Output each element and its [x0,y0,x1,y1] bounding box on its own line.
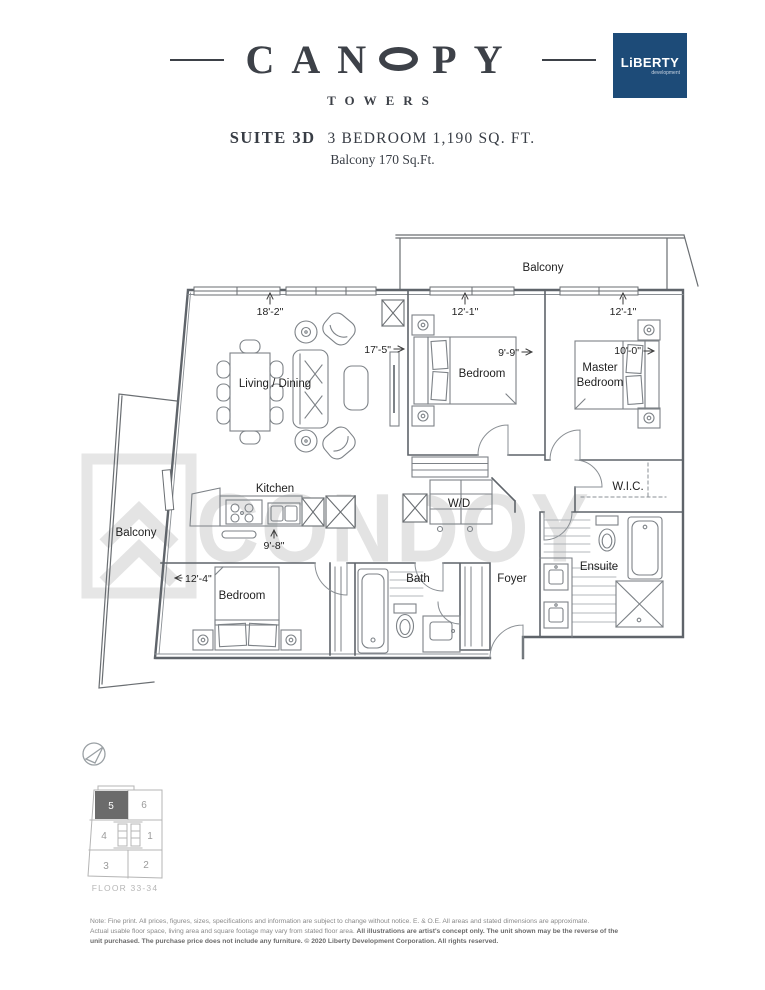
brand-dash-left [170,59,224,61]
label-bedroom3: Bedroom [219,590,266,602]
keyplan-unit-2: 2 [143,860,149,871]
keyplan-unit-4: 4 [101,831,107,842]
keyplan-unit-5: 5 [108,801,114,812]
label-balcony-top: Balcony [523,262,564,274]
kitchen-vent [222,531,256,538]
keyplan-unit-3: 3 [103,861,109,872]
footnote-line1: Note: Fine print. All prices, figures, s… [90,918,589,925]
unit-outer-walls [155,290,683,658]
dim-bedroom3-width: 12'-4" [185,573,212,585]
ensuite-fixtures [540,516,663,637]
keyplan-floor-label: FLOOR 33-34 [92,883,159,893]
floorplan-page: CANPY TOWERS LiBERTY development SUITE 3… [0,0,765,990]
label-wd: W/D [448,498,470,510]
label-wic: W.I.C. [612,481,643,493]
keyplan-unit-1: 1 [147,831,153,842]
label-master-line1: Master [582,362,617,374]
legal-footnote: Note: Fine print. All prices, figures, s… [90,917,682,946]
canopy-o-glyph [379,47,418,71]
brand-name: CANPY [246,40,520,80]
label-bath: Bath [406,573,430,585]
liberty-development-logo: LiBERTY development [613,33,687,98]
label-living-dining: Living / Dining [239,378,311,390]
dim-living-width: 18'-2" [257,306,284,318]
suite-number: SUITE 3D [230,128,316,147]
dining-table [217,340,283,444]
kitchen-counters [190,488,302,538]
master-bedroom-furniture [575,320,660,428]
dim-master-depth: 10'-0" [614,345,641,357]
footnote-line3: unit purchased. The purchase price does … [90,938,498,945]
suite-description: 3 BEDROOM 1,190 SQ. FT. [328,130,536,147]
dim-bedroom2-depth: 9'-9" [498,347,519,359]
dim-bedroom2-width: 12'-1" [452,306,479,318]
coffee-table [344,366,368,410]
brand-dash-right [542,59,596,61]
label-ensuite: Ensuite [580,561,618,573]
balcony-area-info: Balcony 170 Sq.Ft. [0,152,765,168]
liberty-logo-name: LiBERTY [621,56,679,69]
label-master-line2: Bedroom [577,377,624,389]
dim-master-width: 12'-1" [610,306,637,318]
footnote-line2-regular: Actual usable floor space, living area a… [90,928,357,935]
brand-name-left: CAN [246,37,384,82]
brand-name-right: PY [432,37,519,82]
label-balcony-left: Balcony [116,527,157,539]
label-foyer: Foyer [497,573,527,585]
label-kitchen: Kitchen [256,483,294,495]
liberty-logo-sub: development [651,70,680,76]
compass-icon [83,743,105,765]
dim-kitchen: 9'-8" [264,540,285,552]
label-bedroom2: Bedroom [459,368,506,380]
dim-living-depth: 17'-5" [364,344,391,356]
key-plan: 5 6 4 1 3 2 FLOOR 33-34 [78,738,198,896]
floor-plan-drawing: Balcony Balcony Living / Dining Kitchen … [78,220,706,692]
footnote-line2-bold: All illustrations are artist's concept o… [357,928,619,935]
tv-console [390,352,399,426]
suite-title: SUITE 3D3 BEDROOM 1,190 SQ. FT. [0,128,765,148]
keyplan-unit-6: 6 [141,800,147,811]
